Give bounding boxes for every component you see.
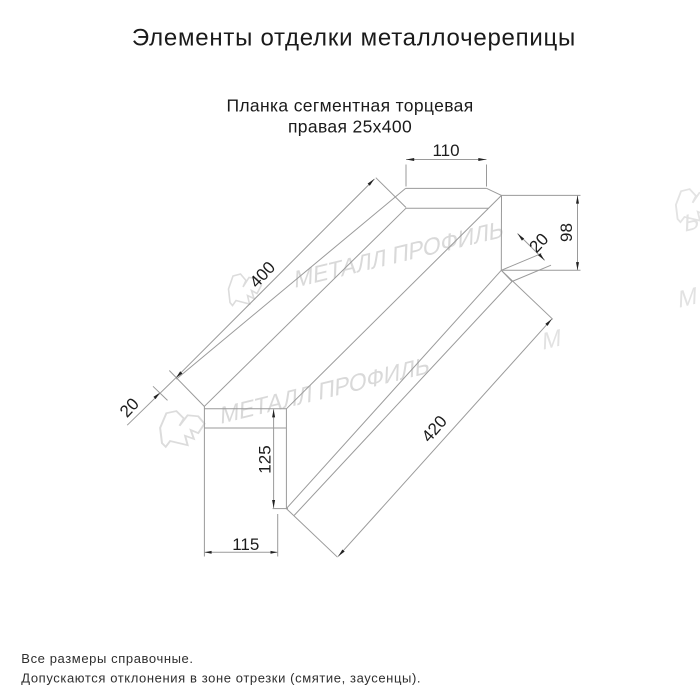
svg-text:правая 25х400: правая 25х400 [288, 117, 412, 137]
svg-text:М: М [542, 324, 562, 356]
svg-text:20: 20 [526, 230, 553, 257]
svg-text:Все размеры справочные.: Все размеры справочные. [21, 651, 193, 666]
svg-text:115: 115 [232, 535, 259, 554]
svg-text:МЕТАЛЛ ПРОФИЛЬ: МЕТАЛЛ ПРОФИЛЬ [220, 352, 430, 431]
svg-text:М: М [678, 282, 698, 314]
svg-text:420: 420 [418, 412, 451, 446]
svg-text:20: 20 [116, 394, 143, 421]
svg-text:110: 110 [432, 141, 459, 160]
svg-text:125: 125 [256, 445, 275, 473]
svg-text:Ь: Ь [684, 207, 700, 238]
svg-text:Допускаются отклонения в зоне: Допускаются отклонения в зоне отрезки (с… [21, 671, 421, 686]
svg-text:98: 98 [557, 223, 576, 242]
svg-text:Элементы отделки металлочерепи: Элементы отделки металлочерепицы [132, 25, 576, 52]
svg-text:Планка сегментная торцевая: Планка сегментная торцевая [226, 96, 473, 116]
svg-text:400: 400 [246, 258, 279, 292]
